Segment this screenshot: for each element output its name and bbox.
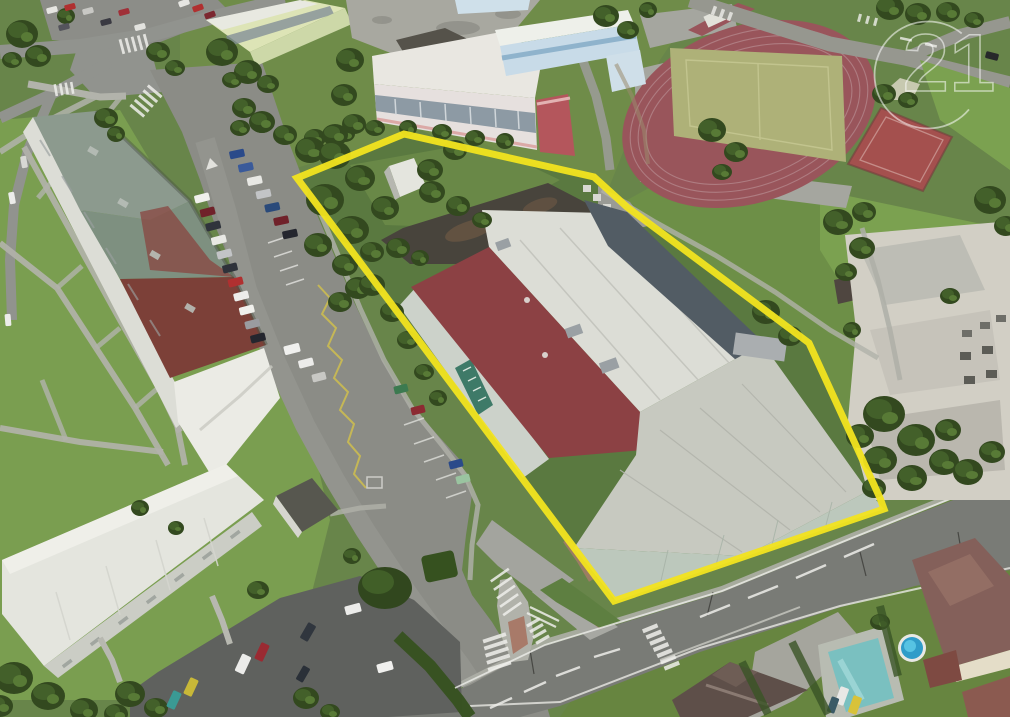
svg-text:21: 21 — [903, 18, 996, 109]
